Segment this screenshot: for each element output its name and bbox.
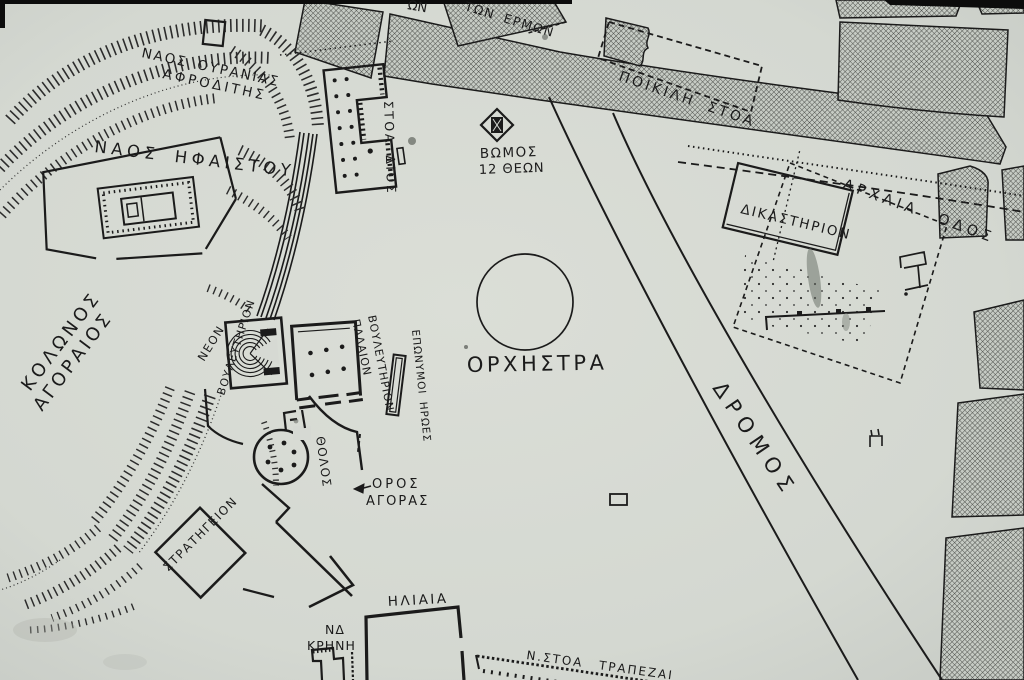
label-altar-line2: 12 ΘΕΩΝ	[479, 161, 545, 178]
new-bouleuterion-bar	[260, 328, 277, 336]
label-orchestra: ΟΡΧΗΣΤΡΑ	[467, 351, 608, 377]
label-horos-line2: ΑΓΟΡΑΣ	[366, 494, 429, 509]
tick	[836, 309, 841, 313]
city-block	[974, 300, 1024, 390]
label-sw-fountain-line2: ΚΡΗΝΗ	[307, 638, 356, 653]
tick	[866, 307, 871, 311]
city-block	[940, 528, 1024, 680]
label-altar-line1: ΒΩΜΟΣ	[480, 144, 538, 162]
label-heliaia: ΗΛΙΑΙΑ	[387, 591, 449, 610]
tholos-porch-gap	[293, 426, 311, 440]
stain	[103, 654, 147, 670]
stain	[464, 345, 468, 349]
stain	[408, 137, 416, 145]
stain	[13, 618, 77, 642]
agora-plan-photo: ΚΟΛΩΝΟΣ ΑΓΟΡΑΙΟΣ ΝΑΟΣ ΗΦΑΙΣΤΟΥ ΝΑΟΣ ΟΥΡΑ…	[0, 0, 1024, 680]
film-edge	[0, 0, 5, 28]
stain	[294, 419, 299, 424]
city-block	[952, 394, 1024, 517]
city-block	[838, 22, 1008, 117]
label-horos-line1: ΟΡΟΣ	[372, 477, 421, 492]
agora-map-canvas: ΚΟΛΩΝΟΣ ΑΓΟΡΑΙΟΣ ΝΑΟΣ ΗΦΑΙΣΤΟΥ ΝΑΟΣ ΟΥΡΑ…	[0, 0, 1024, 680]
tick	[797, 311, 802, 315]
label-sw-fountain-line1: ΝΔ	[325, 622, 345, 637]
structure-dot	[904, 292, 908, 296]
stain	[787, 141, 797, 163]
new-bouleuterion-bar	[263, 367, 280, 375]
city-block	[1002, 166, 1024, 240]
stain	[842, 313, 850, 331]
